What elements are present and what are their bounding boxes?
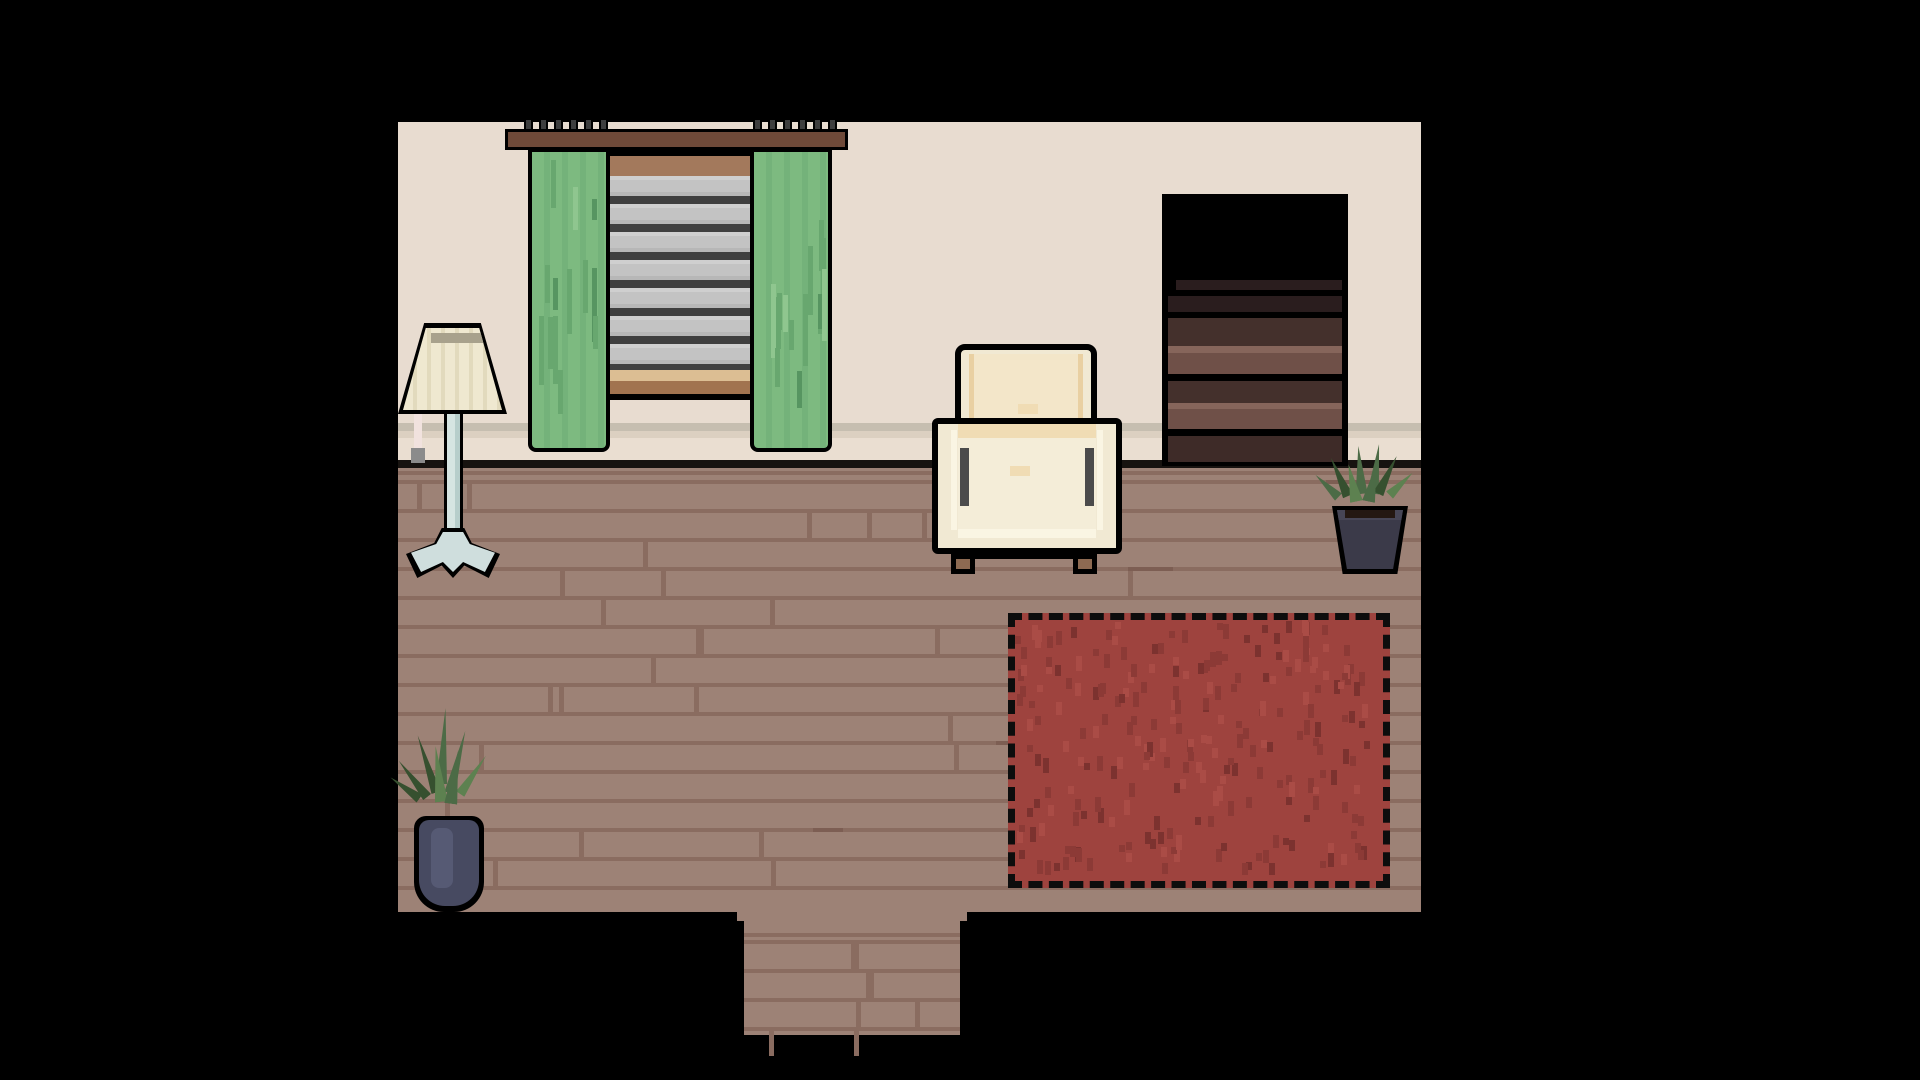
plank-seam bbox=[954, 745, 959, 770]
rug-fleck bbox=[1210, 652, 1216, 667]
rug-fleck bbox=[1045, 787, 1051, 798]
rug-fleck bbox=[1135, 736, 1141, 746]
rug-fleck bbox=[1220, 776, 1226, 784]
rug-fleck bbox=[1277, 780, 1283, 788]
rug-fleck bbox=[1228, 801, 1234, 816]
window bbox=[600, 150, 758, 400]
plank-seam bbox=[771, 861, 776, 886]
curtain-streak bbox=[822, 269, 827, 341]
rug-fleck bbox=[1304, 720, 1310, 735]
rug-fleck bbox=[1183, 671, 1189, 679]
plant-pot-fill bbox=[1337, 510, 1403, 569]
plank-seam bbox=[417, 484, 422, 509]
rug-fleck bbox=[1231, 684, 1237, 692]
rug-fleck bbox=[1195, 817, 1201, 825]
rug-fleck bbox=[1328, 853, 1334, 867]
rug-fleck bbox=[1119, 694, 1125, 703]
rug-fleck bbox=[1224, 765, 1230, 774]
rug-fleck bbox=[1313, 787, 1319, 794]
rug-fleck bbox=[1126, 842, 1132, 850]
rug-fleck bbox=[1176, 835, 1182, 850]
rug-fleck bbox=[1017, 694, 1023, 706]
rug-fleck bbox=[1150, 839, 1156, 849]
rug-fleck bbox=[1158, 832, 1164, 844]
rug-fleck bbox=[1343, 749, 1349, 764]
curtain-streak bbox=[553, 278, 558, 310]
rug-fleck bbox=[1183, 762, 1189, 773]
rug-fleck bbox=[1162, 863, 1168, 874]
seat-top-band bbox=[958, 424, 1096, 438]
plank-seam bbox=[694, 687, 699, 712]
plank-seam bbox=[559, 687, 564, 712]
rug-fleck bbox=[1080, 728, 1086, 739]
rug-fleck bbox=[1063, 741, 1069, 752]
plank-seam bbox=[948, 716, 953, 741]
rug-fleck bbox=[1117, 757, 1123, 769]
rug-fleck bbox=[1289, 840, 1295, 851]
window-sill bbox=[606, 370, 752, 381]
rug-fleck bbox=[1320, 861, 1326, 868]
rug-fleck bbox=[1322, 625, 1328, 635]
curtain-streak bbox=[567, 269, 572, 334]
plank-seam bbox=[807, 513, 812, 538]
rug-fleck bbox=[1131, 664, 1137, 677]
rug-fleck bbox=[1152, 644, 1158, 654]
chair-seat-cushion bbox=[958, 424, 1096, 538]
plank-seam bbox=[651, 658, 656, 683]
curtain-streak bbox=[551, 160, 556, 208]
rug-fleck bbox=[1312, 657, 1318, 668]
rug-fleck bbox=[1169, 631, 1175, 638]
rug-fleck bbox=[1161, 847, 1167, 857]
window-sill-shadow bbox=[606, 381, 752, 394]
rug-fleck bbox=[1029, 701, 1035, 708]
rug-fleck bbox=[1276, 652, 1282, 660]
rug-fleck bbox=[1344, 645, 1350, 656]
shelf-drawer bbox=[1168, 353, 1342, 374]
shelf-drawer bbox=[1168, 409, 1342, 429]
rug-fleck bbox=[1277, 708, 1283, 717]
plank-seam bbox=[560, 571, 565, 596]
rug-fleck bbox=[1354, 682, 1360, 696]
pot-soil bbox=[1345, 510, 1395, 518]
rug-fleck bbox=[1066, 678, 1072, 689]
rug-fleck bbox=[1213, 791, 1219, 806]
rug-fleck bbox=[1054, 863, 1060, 871]
rug-fleck bbox=[1207, 682, 1213, 694]
rug-fleck bbox=[1274, 633, 1280, 644]
seat-highlight bbox=[958, 529, 1096, 538]
rug-fleck bbox=[1021, 665, 1027, 676]
rug-fleck bbox=[1362, 704, 1368, 718]
rug-fleck bbox=[1035, 754, 1041, 766]
rug[interactable] bbox=[1008, 613, 1390, 888]
rug-fleck bbox=[1115, 622, 1121, 629]
rug-fleck bbox=[1352, 814, 1358, 823]
rug-fleck bbox=[1295, 659, 1301, 672]
rug-fleck bbox=[1349, 711, 1355, 723]
rug-fleck bbox=[1076, 656, 1082, 671]
rug-fleck bbox=[1331, 770, 1337, 785]
rug-fleck bbox=[1076, 848, 1082, 862]
rug-fleck bbox=[1236, 721, 1242, 728]
plant-leaves bbox=[398, 708, 498, 824]
rug-fleck bbox=[1043, 758, 1049, 773]
curtain-streak bbox=[808, 246, 813, 315]
lamp-shade-opening bbox=[431, 333, 483, 343]
game-scene bbox=[0, 0, 1920, 1080]
rug-fleck bbox=[1124, 800, 1130, 815]
rug-fleck bbox=[1217, 623, 1223, 630]
rug-fleck bbox=[1126, 853, 1132, 862]
rug-fleck bbox=[1255, 645, 1261, 657]
rug-fleck bbox=[1323, 671, 1329, 680]
rug-fleck bbox=[1267, 742, 1273, 752]
rug-fleck bbox=[1342, 802, 1348, 813]
shelf-drawer bbox=[1168, 381, 1342, 403]
rug-fleck bbox=[1131, 716, 1137, 725]
rug-fleck bbox=[1087, 858, 1093, 871]
curtain-streak bbox=[776, 297, 781, 349]
rug-fleck bbox=[1308, 704, 1314, 718]
arm-highlight-left bbox=[951, 430, 957, 530]
rug-fleck bbox=[1263, 673, 1269, 682]
rug-fleck bbox=[1341, 854, 1347, 865]
curtain-streak bbox=[593, 316, 598, 349]
chair-seat-and-arms bbox=[932, 418, 1122, 554]
plank-seam bbox=[699, 629, 704, 654]
rug-fleck bbox=[1358, 816, 1364, 826]
rug-fleck bbox=[1017, 831, 1023, 843]
rug-fleck bbox=[1364, 741, 1370, 749]
rug-fleck bbox=[1188, 752, 1194, 761]
rug-fleck bbox=[1149, 664, 1155, 673]
curtain-rod bbox=[505, 129, 848, 150]
rug-fleck bbox=[1034, 799, 1040, 808]
rug-fleck bbox=[1100, 683, 1106, 694]
curtain-streak bbox=[553, 316, 558, 384]
rug-fleck bbox=[1173, 666, 1179, 677]
rug-fleck bbox=[1283, 650, 1289, 662]
bookshelf[interactable] bbox=[1162, 194, 1348, 466]
rug-fleck bbox=[1262, 625, 1268, 633]
rug-fleck bbox=[1154, 816, 1160, 830]
rug-fleck bbox=[1222, 654, 1228, 661]
plank-seam bbox=[769, 1031, 774, 1056]
rug-fleck bbox=[1106, 630, 1112, 640]
plank-seam bbox=[643, 542, 648, 567]
rug-fleck bbox=[1228, 758, 1234, 765]
rug-fleck bbox=[1206, 736, 1212, 744]
cushion-spot bbox=[1010, 466, 1030, 476]
rug-fleck bbox=[1075, 683, 1081, 696]
rug-fleck bbox=[1256, 853, 1262, 861]
rug-fleck bbox=[1297, 731, 1303, 740]
rug-fleck bbox=[1068, 786, 1074, 794]
rug-fleck bbox=[1097, 756, 1103, 771]
rug-fleck bbox=[1173, 686, 1179, 700]
rug-fleck bbox=[1323, 644, 1329, 652]
curtain-streak bbox=[797, 371, 802, 408]
rug-fleck bbox=[1223, 624, 1229, 639]
rug-fleck bbox=[1359, 721, 1365, 728]
rug-fleck bbox=[1342, 673, 1348, 680]
plank-seam bbox=[922, 513, 927, 538]
rug-fleck bbox=[1218, 715, 1224, 724]
plank-seam bbox=[854, 1031, 859, 1056]
rug-fleck bbox=[1104, 654, 1110, 668]
plank-seam bbox=[866, 973, 871, 998]
rug-fleck bbox=[1351, 831, 1357, 839]
rug-fleck bbox=[1073, 812, 1079, 826]
rug-fleck bbox=[1243, 728, 1249, 739]
chair-accent-left bbox=[960, 448, 969, 506]
rug-fleck bbox=[1035, 633, 1041, 648]
rug-fleck bbox=[1056, 702, 1062, 715]
curtain-streak bbox=[775, 348, 780, 387]
plank-seam bbox=[854, 944, 859, 969]
plank-seam bbox=[915, 1002, 920, 1027]
rug-fleck bbox=[1354, 785, 1360, 794]
rug-fleck bbox=[1093, 726, 1099, 738]
shelf-drawer bbox=[1168, 318, 1342, 346]
rug-fleck bbox=[1221, 843, 1227, 851]
rug-fleck bbox=[1302, 620, 1308, 633]
rug-fleck bbox=[1304, 815, 1310, 822]
rug-fleck bbox=[1019, 825, 1025, 832]
curtain-streak bbox=[803, 294, 808, 366]
cushion-spot bbox=[1018, 404, 1038, 414]
rug-fleck bbox=[1158, 643, 1164, 654]
rug-fleck bbox=[1170, 717, 1176, 724]
rug-fleck bbox=[1133, 692, 1139, 707]
plant-vase bbox=[414, 816, 484, 912]
rug-fleck bbox=[1035, 716, 1041, 725]
rug-fleck bbox=[1167, 828, 1173, 839]
rug-fleck bbox=[1198, 663, 1204, 674]
rug-fleck bbox=[1215, 686, 1221, 700]
curtain-streak bbox=[789, 320, 794, 350]
rug-fleck bbox=[1176, 723, 1182, 734]
rug-fleck bbox=[1246, 797, 1252, 808]
curtain-right bbox=[750, 148, 832, 452]
rug-fleck bbox=[1317, 744, 1323, 755]
curtain-streak bbox=[539, 316, 544, 385]
rug-fleck bbox=[1109, 817, 1115, 827]
rug-fleck bbox=[1244, 635, 1250, 643]
rug-fleck bbox=[1141, 682, 1147, 693]
plank-seam bbox=[493, 861, 498, 886]
rug-fleck bbox=[1235, 673, 1241, 683]
rug-fleck bbox=[1055, 665, 1061, 676]
rug-fleck bbox=[1056, 631, 1062, 645]
plank-seam bbox=[467, 484, 472, 509]
rug-fleck bbox=[1175, 700, 1181, 714]
rug-fleck bbox=[1342, 715, 1348, 722]
rug-fleck bbox=[1212, 748, 1218, 758]
plank-seam bbox=[661, 571, 666, 596]
rug-fleck bbox=[1350, 756, 1356, 766]
rug-fleck bbox=[1182, 630, 1188, 643]
rug-fleck bbox=[1338, 682, 1344, 689]
rug-fleck bbox=[1027, 808, 1033, 817]
rug-fleck bbox=[1286, 621, 1292, 633]
plank-seam bbox=[770, 600, 775, 625]
window-blinds bbox=[606, 176, 752, 370]
rug-fleck bbox=[1047, 636, 1053, 648]
rug-fleck bbox=[1063, 857, 1069, 870]
rug-fleck bbox=[1081, 811, 1087, 819]
rug-fleck bbox=[1173, 657, 1179, 665]
shelf-band bbox=[1168, 296, 1342, 312]
rug-fleck bbox=[1045, 861, 1051, 875]
plank-seam bbox=[1128, 571, 1133, 596]
curtain-streak bbox=[548, 317, 553, 369]
plant-leaf bbox=[444, 749, 464, 804]
doorway-exit[interactable] bbox=[744, 912, 960, 1035]
plank-accent bbox=[813, 828, 843, 832]
plank-seam bbox=[548, 687, 553, 712]
plant-vase-fill bbox=[419, 820, 479, 906]
rug-fleck bbox=[1129, 783, 1135, 797]
rug-fleck bbox=[1315, 722, 1321, 737]
chair-accent-right bbox=[1085, 448, 1094, 506]
rug-fleck bbox=[1257, 767, 1263, 779]
rug-fleck bbox=[1048, 805, 1054, 816]
rug-fleck bbox=[1196, 762, 1202, 773]
rug-fleck bbox=[1315, 685, 1321, 693]
rug-fleck bbox=[1143, 763, 1149, 770]
rug-fleck bbox=[1250, 745, 1256, 757]
curtain-streak bbox=[783, 295, 788, 332]
rug-fleck bbox=[1102, 714, 1108, 725]
curtain-streak bbox=[545, 265, 550, 303]
rug-fleck bbox=[1273, 835, 1279, 848]
rug-fleck bbox=[1358, 850, 1364, 860]
rug-fleck bbox=[1093, 649, 1099, 656]
lamp-stem bbox=[444, 410, 463, 534]
rug-fleck bbox=[1084, 763, 1090, 770]
rug-fleck bbox=[1075, 799, 1081, 810]
rug-fleck bbox=[1015, 636, 1021, 644]
curtain-streak bbox=[558, 370, 563, 414]
curtain-streak bbox=[819, 220, 824, 271]
rug-fleck bbox=[1151, 719, 1157, 730]
curtain-streak bbox=[592, 199, 597, 220]
plant-leaves bbox=[1316, 440, 1416, 516]
rug-fleck bbox=[1263, 850, 1269, 863]
rug-fleck bbox=[1270, 676, 1276, 684]
curtain-left bbox=[528, 148, 610, 452]
plank-seam bbox=[601, 600, 606, 625]
rug-fleck bbox=[1112, 636, 1118, 645]
arm-highlight-right bbox=[1097, 430, 1103, 530]
rug-fleck bbox=[1286, 667, 1292, 676]
rug-fleck bbox=[1019, 850, 1025, 859]
plank-seam bbox=[579, 832, 584, 857]
rug-fleck bbox=[1046, 657, 1052, 667]
rug-fleck bbox=[1269, 863, 1275, 875]
rug-fleck bbox=[1313, 796, 1319, 810]
shelf-drawer bbox=[1168, 346, 1342, 353]
plant-pot bbox=[1332, 506, 1408, 574]
shelf-band bbox=[1176, 280, 1342, 290]
rug-fleck bbox=[1242, 863, 1248, 875]
vase-highlight bbox=[431, 828, 453, 888]
plank-seam bbox=[867, 513, 872, 538]
rug-fleck bbox=[1260, 701, 1266, 716]
rug-fleck bbox=[1030, 827, 1036, 842]
rug-fleck bbox=[1027, 719, 1033, 731]
rug-fleck bbox=[1071, 627, 1077, 638]
rug-fleck bbox=[1095, 797, 1101, 812]
rug-fleck bbox=[1160, 738, 1166, 752]
curtain-streak bbox=[583, 260, 588, 313]
rug-fleck bbox=[1144, 752, 1150, 760]
rug-fleck bbox=[1027, 745, 1033, 752]
rug-fleck bbox=[1164, 757, 1170, 768]
window-top-bar bbox=[606, 156, 752, 176]
rug-fleck bbox=[1070, 846, 1076, 857]
lamp-plug bbox=[411, 448, 425, 463]
rug-fleck bbox=[1208, 816, 1214, 827]
rug-fleck bbox=[1039, 823, 1045, 836]
plank-seam bbox=[856, 1002, 861, 1027]
plank-accent bbox=[1128, 567, 1173, 571]
curtain-streak bbox=[573, 187, 578, 230]
rug-fleck bbox=[1111, 770, 1117, 779]
rug-fleck bbox=[1303, 648, 1309, 662]
rug-fleck bbox=[1037, 860, 1043, 874]
rug-fleck bbox=[1037, 685, 1043, 692]
rug-fleck bbox=[1188, 739, 1194, 747]
rug-fleck bbox=[1204, 660, 1210, 671]
rug-fleck bbox=[1320, 770, 1326, 778]
plank-seam bbox=[935, 629, 940, 654]
rug-fleck bbox=[1021, 647, 1027, 659]
plant-leaf bbox=[456, 753, 490, 797]
plank-seam bbox=[759, 832, 764, 857]
rug-fleck bbox=[1119, 845, 1125, 852]
rug-fleck bbox=[1121, 647, 1127, 660]
rug-fleck bbox=[1289, 782, 1295, 797]
rug-fleck bbox=[1180, 779, 1186, 789]
rug-fleck bbox=[1286, 797, 1292, 805]
rug-fleck bbox=[1203, 698, 1209, 710]
